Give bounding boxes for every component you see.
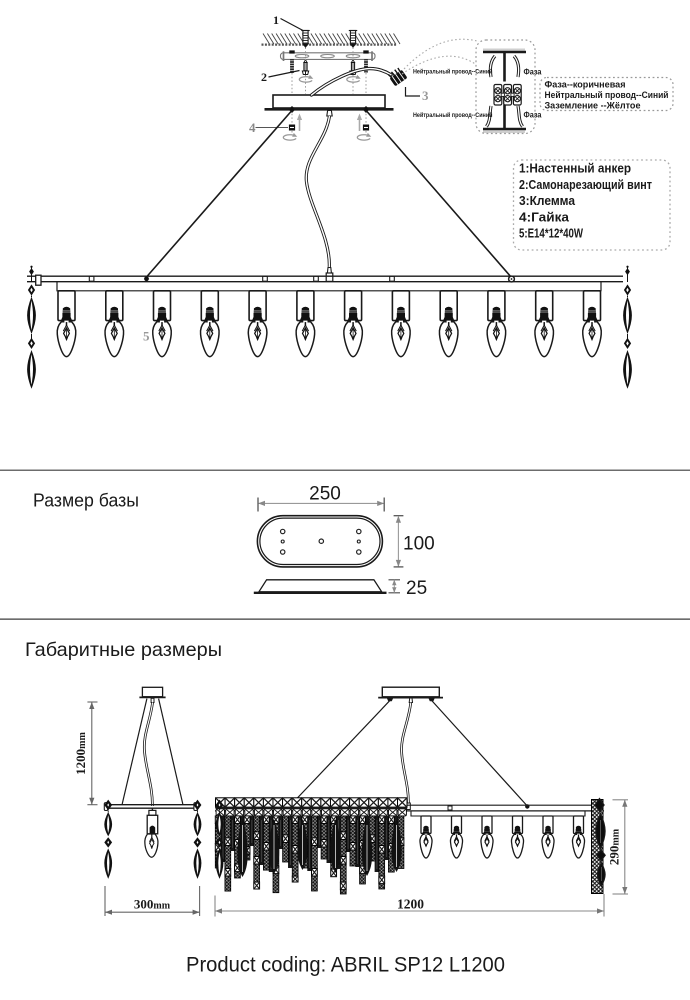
svg-text:3:Клемма: 3:Клемма: [519, 194, 576, 208]
svg-text:5: 5: [143, 329, 150, 344]
svg-text:Фаза--коричневая: Фаза--коричневая: [545, 80, 626, 91]
svg-text:Product coding: ABRIL SP12 L12: Product coding: ABRIL SP12 L1200: [186, 953, 505, 976]
svg-text:2: 2: [261, 70, 267, 84]
svg-text:Заземление --Жёлтое: Заземление --Жёлтое: [545, 101, 641, 112]
svg-text:1: 1: [273, 13, 279, 27]
svg-text:Нейтральный провод--Синий: Нейтральный провод--Синий: [413, 68, 493, 76]
svg-text:1:Настенный анкер: 1:Настенный анкер: [519, 162, 631, 176]
svg-text:3: 3: [422, 88, 429, 103]
svg-text:4:Гайка: 4:Гайка: [519, 210, 570, 224]
svg-text:4: 4: [249, 120, 256, 135]
svg-text:Размер базы: Размер базы: [33, 491, 139, 511]
svg-text:Нейтральный провод--Синий: Нейтральный провод--Синий: [413, 111, 493, 119]
svg-text:Габаритные размеры: Габаритные размеры: [25, 639, 222, 661]
svg-text:Фаза: Фаза: [524, 67, 542, 77]
svg-text:250: 250: [309, 483, 341, 504]
svg-text:Фаза: Фаза: [524, 110, 542, 120]
svg-text:1200: 1200: [397, 897, 424, 912]
svg-text:25: 25: [406, 578, 427, 599]
svg-text:5:E14*12*40W: 5:E14*12*40W: [519, 227, 583, 241]
svg-text:100: 100: [403, 534, 435, 555]
svg-text:Нейтральный провод--Синий: Нейтральный провод--Синий: [545, 90, 669, 101]
svg-text:2:Самонарезающий винт: 2:Самонарезающий винт: [519, 178, 652, 192]
